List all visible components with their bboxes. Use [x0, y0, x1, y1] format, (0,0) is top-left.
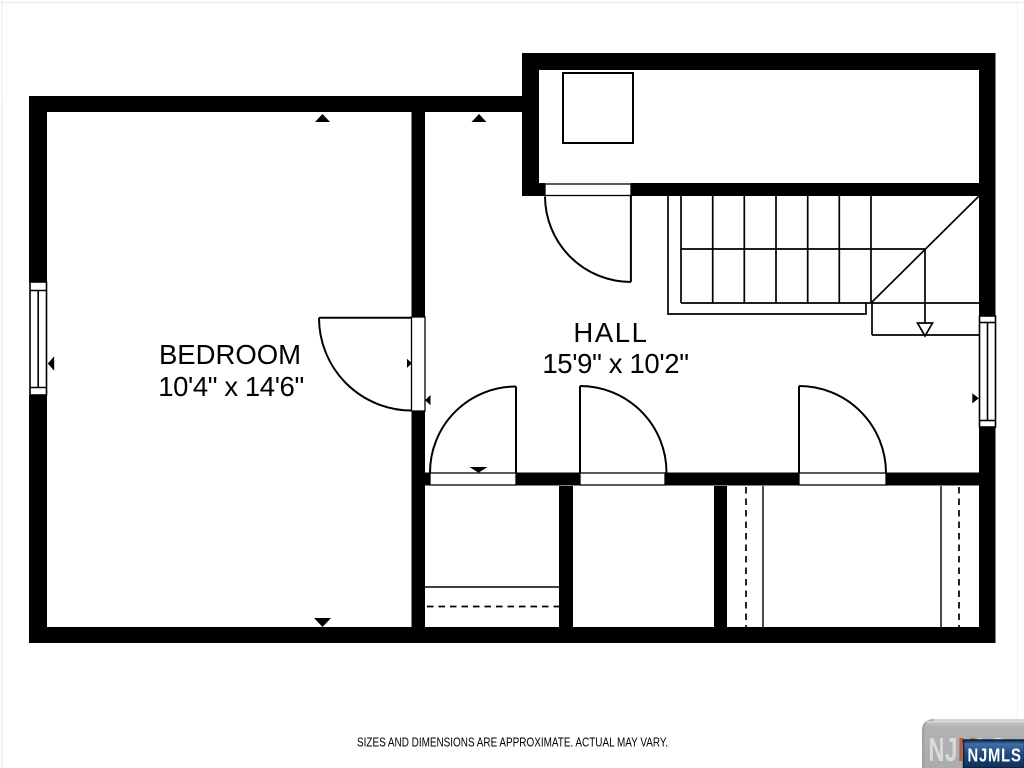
svg-text:NJMLS: NJMLS: [968, 745, 1022, 766]
svg-text:SIZES AND DIMENSIONS ARE APPRO: SIZES AND DIMENSIONS ARE APPROXIMATE. AC…: [357, 735, 668, 750]
svg-text:BEDROOM: BEDROOM: [159, 339, 301, 370]
svg-text:HALL: HALL: [573, 317, 648, 348]
svg-text:15'9" x 10'2": 15'9" x 10'2": [542, 348, 688, 379]
svg-text:10'4" x 14'6": 10'4" x 14'6": [158, 371, 304, 402]
